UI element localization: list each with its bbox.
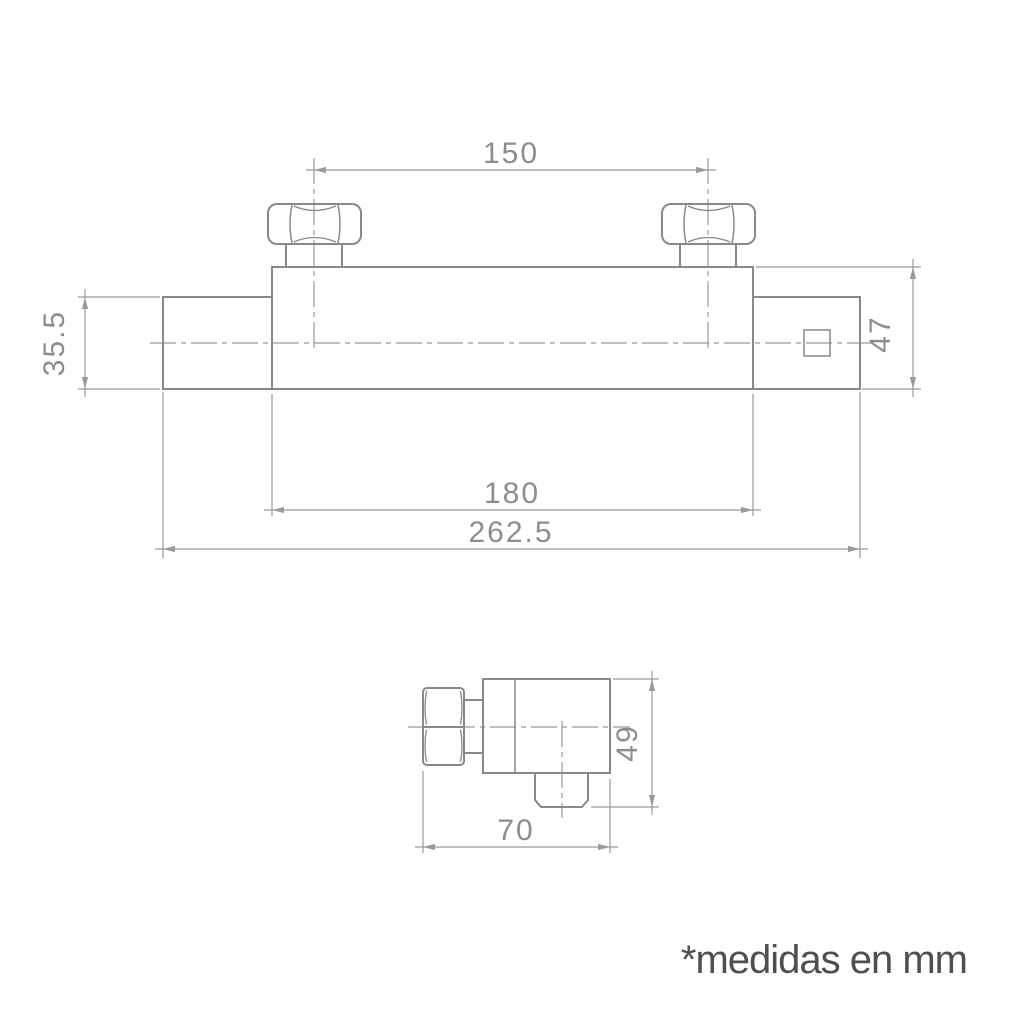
dim-label-overall-height: 49 [611,724,644,761]
dim-label-depth: 70 [497,814,534,847]
right-hex-nut-facet-line [732,205,734,243]
technical-drawing-page: 150 35.5 47 180 262.5 [0,0,1024,1024]
left-hex-nut-facet-line [338,205,340,243]
front-view-outlines [163,204,860,389]
dim-label-body-height: 47 [864,315,897,352]
main-valve-body [272,267,753,389]
right-hex-nut-chamfer-arc [688,238,730,243]
dim-label-overall-length: 262.5 [468,516,553,549]
left-hex-nut-chamfer-arc [294,238,336,243]
front-view: 150 35.5 47 180 262.5 [38,137,921,558]
units-note: *medidas en mm [681,938,967,982]
side-view: 70 49 [408,671,659,853]
side-view-dimension-labels: 70 49 [497,724,644,847]
left-hex-nut-facet-line [290,205,292,243]
dim-label-nut-spacing: 150 [483,137,539,170]
drawing-svg: 150 35.5 47 180 262.5 [0,0,1024,1024]
side-view-outlines [423,679,610,807]
right-hex-nut-facet-line [684,205,686,243]
side-view-centerlines [408,721,630,818]
front-view-centerlines [150,158,877,350]
side-hex-nut [423,688,464,765]
dim-label-body-length: 180 [484,477,540,510]
side-body [483,679,610,773]
dim-label-inlet-height: 35.5 [38,310,71,376]
right-hex-nut-chamfer-arc [688,206,730,211]
left-hex-nut-chamfer-arc [294,206,336,211]
dim-35-5 [78,289,160,397]
